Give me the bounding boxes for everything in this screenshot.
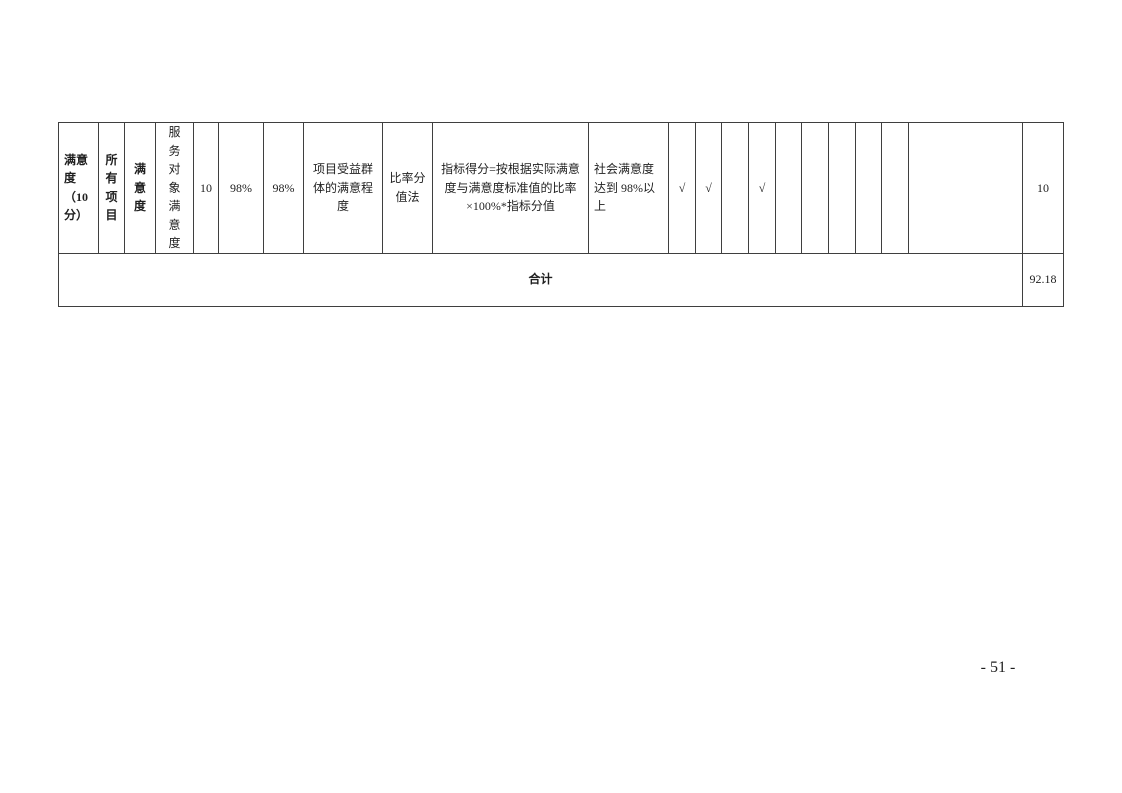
- cell-check-3: [722, 123, 749, 254]
- cell-check-2: √: [696, 123, 722, 254]
- cell-check-9: [882, 123, 909, 254]
- table-row-total: 合计 92.18: [59, 253, 1064, 306]
- cell-check-8: [856, 123, 882, 254]
- cell-check-4: √: [749, 123, 776, 254]
- cell-check-7: [829, 123, 856, 254]
- cell-check-1: √: [669, 123, 696, 254]
- cell-total-label: 合计: [59, 253, 1023, 306]
- cell-service-object-satisfaction: 服 务 对 象 满 意 度: [156, 123, 194, 254]
- table-row-satisfaction: 满意 度 （10 分） 所 有 项 目 满 意 度 服 务 对 象 满 意 度 …: [59, 123, 1064, 254]
- cell-scoring-formula: 指标得分=按根据实际满意 度与满意度标准值的比率 ×100%*指标分值: [433, 123, 589, 254]
- cell-standard-value: 98%: [219, 123, 264, 254]
- cell-check-5: [776, 123, 802, 254]
- page-number: - 51 -: [960, 659, 1036, 677]
- cell-satisfaction: 满 意 度: [125, 123, 156, 254]
- cell-total-value: 92.18: [1023, 253, 1064, 306]
- cell-all-projects: 所 有 项 目: [99, 123, 125, 254]
- cell-notes: [909, 123, 1023, 254]
- evaluation-table: 满意 度 （10 分） 所 有 项 目 满 意 度 服 务 对 象 满 意 度 …: [58, 122, 1064, 307]
- cell-indicator-explanation: 项目受益群 体的满意程 度: [304, 123, 383, 254]
- document-page: 满意 度 （10 分） 所 有 项 目 满 意 度 服 务 对 象 满 意 度 …: [0, 0, 1122, 793]
- cell-actual-value: 98%: [264, 123, 304, 254]
- cell-scoring-rule: 社会满意度 达到 98%以 上: [589, 123, 669, 254]
- cell-check-6: [802, 123, 829, 254]
- cell-satisfaction-category: 满意 度 （10 分）: [59, 123, 99, 254]
- cell-indicator-score: 10: [194, 123, 219, 254]
- cell-scoring-method: 比率分 值法: [383, 123, 433, 254]
- cell-row-score: 10: [1023, 123, 1064, 254]
